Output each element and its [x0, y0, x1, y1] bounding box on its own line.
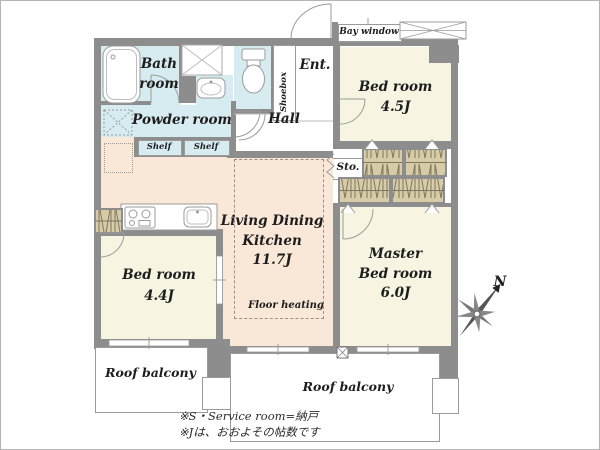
floor-heating-label: Floor heating [242, 301, 330, 311]
washbasin-icon [197, 78, 225, 98]
bedroom-sw-size: 4.4J [101, 290, 217, 304]
shoebox-text: Shoebox [279, 72, 289, 112]
master-label-1: Master [340, 248, 451, 262]
closet-sw-door-arc [100, 233, 124, 257]
roof-balcony-left-label: Roof balcony [95, 367, 206, 380]
bath-label-2: room [137, 78, 181, 92]
shelf-left-label: Shelf [138, 143, 180, 152]
master-label-2: Bed room [340, 268, 451, 282]
entrance-label: Ent. [294, 59, 336, 73]
bathtub-icon [103, 46, 140, 103]
master-door-arc [343, 209, 373, 239]
hall-label: Hall [259, 113, 309, 127]
ldk-label-2: Kitchen [211, 235, 333, 249]
ldk-label-1: Living Dining [211, 215, 333, 229]
pipe-shaft-icon [337, 347, 348, 358]
stove-icon [125, 207, 155, 228]
shelf-right-label: Shelf [184, 143, 228, 152]
floor-plan: Bath room Powder room Shelf Shelf Shoebo… [0, 0, 600, 450]
master-size: 6.0J [340, 287, 451, 301]
toilet-icon [242, 49, 265, 93]
void-cross-strip [400, 22, 466, 39]
note-tatami-count: ※Jは、おおよその帖数です [179, 424, 320, 440]
kitchen-sink-icon [184, 207, 211, 227]
closet-row2 [339, 178, 444, 203]
storage-label: Sto. [333, 162, 363, 173]
closet-row1 [363, 149, 446, 176]
note-service-room: ※S・Service room=納戸 [179, 408, 318, 424]
compass-n-label: N [491, 275, 509, 289]
laundry-pan-icon [104, 110, 132, 135]
bedroom-ne-size: 4.5J [340, 101, 451, 115]
bedroom-sw-name: Bed room [101, 269, 217, 283]
entrance-door-arc [291, 4, 331, 38]
roof-balcony-right-label: Roof balcony [278, 381, 418, 394]
bedroom-ne-name: Bed room [340, 81, 451, 95]
closet-sw [95, 209, 122, 233]
bay-window-label: Bay window [338, 28, 400, 37]
ldk-size: 11.7J [211, 254, 333, 268]
bath-label-1: Bath [137, 58, 181, 72]
powder-room-label: Powder room [131, 114, 233, 128]
washing-machine-icon [182, 45, 222, 75]
